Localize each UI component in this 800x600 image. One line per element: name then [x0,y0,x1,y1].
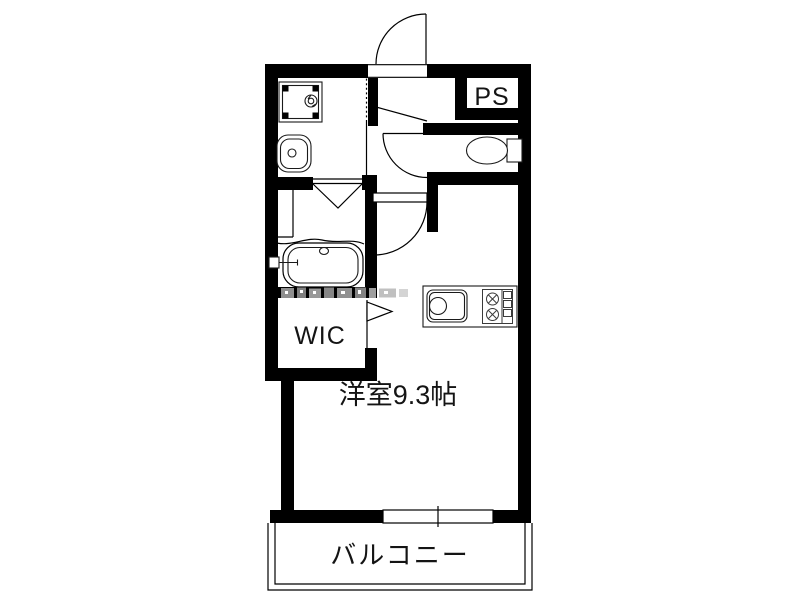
wic-label: WIC [294,322,346,350]
main-room-label: 洋室9.3帖 [339,380,458,410]
entrance-door [368,14,427,77]
washroom [277,74,367,177]
bath-folding-door [313,179,362,208]
bathtub [283,243,363,287]
washbasin [277,135,311,172]
balcony-window [383,506,493,527]
ps-label: PS [474,83,509,111]
watermark-blocks [281,288,408,299]
main-room-door [373,193,427,255]
entrance-step-line [376,107,427,121]
wic-door [367,300,392,348]
washing-machine-pan [279,82,322,122]
toilet-door [383,134,427,178]
bathroom [269,179,364,287]
kitchen-counter [423,286,517,327]
toilet-fixture [467,137,523,164]
toilet-room [383,134,522,178]
floorplan-drawing: PS WIC 洋室9.3帖 バルコニー [0,0,800,600]
balcony-label: バルコニー [330,540,469,570]
floorplan-page: PS WIC 洋室9.3帖 バルコニー [0,0,800,600]
